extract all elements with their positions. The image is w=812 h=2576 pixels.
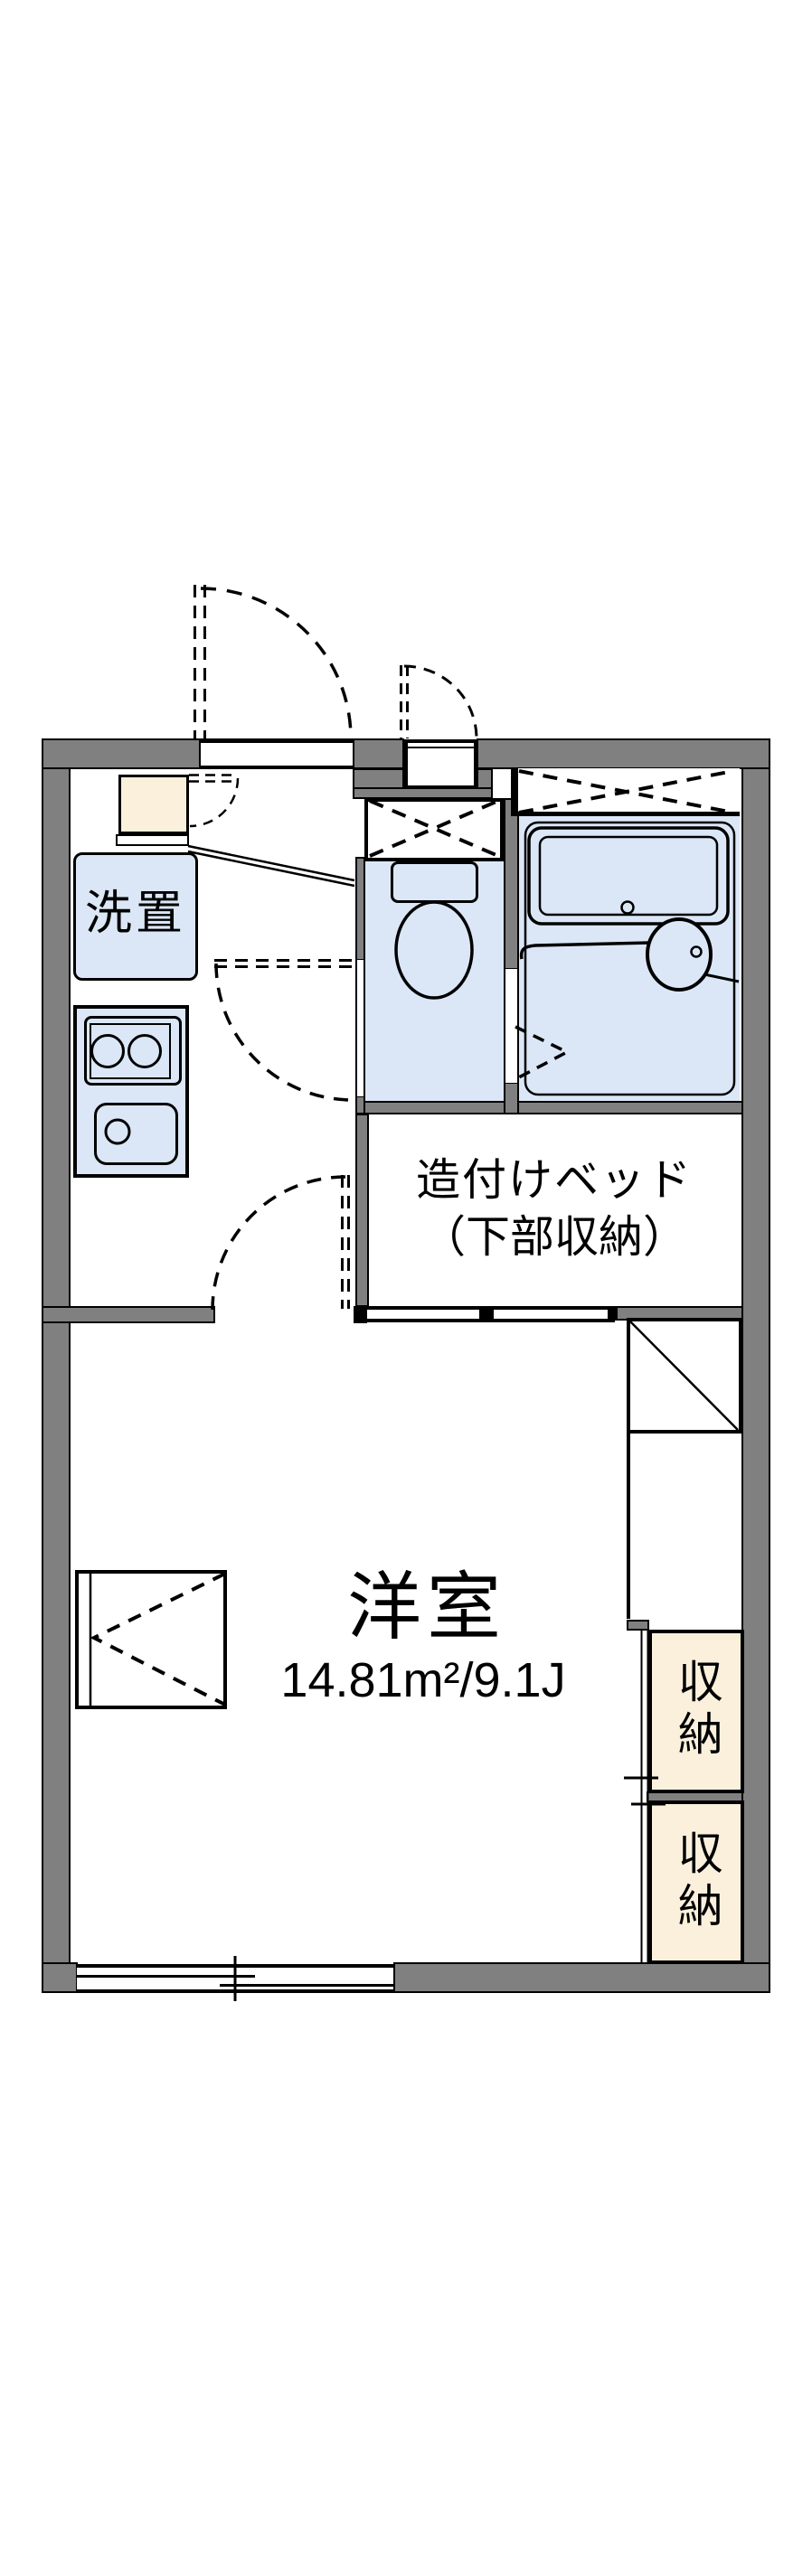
wall-nub-1 [354,1306,367,1323]
room-door-swing [212,1175,349,1310]
storage-top-stub [627,1620,649,1631]
meter-box-door-swing [401,665,477,747]
folding-table [75,1570,227,1709]
pipe-space-box [364,798,504,861]
window-opening [77,1964,393,1993]
bath-upper-shelf [511,768,740,816]
bed-label-line1: 造付けベッド [416,1155,693,1206]
toilet-tank [391,861,478,903]
room-label: 洋室 [347,1565,506,1650]
wall-top-left [42,738,201,769]
wall-bottom-left [42,1962,78,1993]
meter-box [404,739,477,789]
room-area-label: 14.81m²/9.1J [280,1652,565,1708]
wall-toilet-bath-stub [504,1082,519,1114]
wall-hall-toilet [355,857,365,961]
entrance-step-diagonal [188,846,354,886]
bath-doorway [504,969,519,1083]
bathroom-floor [518,816,740,1101]
wall-wet-bottom [362,1101,743,1114]
storage-upper-label: 収納 [670,1658,722,1763]
kitchen-sink [94,1103,178,1165]
shoe-cabinet-door-swing [189,776,238,827]
bed-label-line2: （下部収納） [421,1212,687,1263]
wall-nub-3 [608,1306,618,1321]
wall-top-mid [353,738,404,769]
wall-toilet-bath [504,798,519,970]
meter-box-jamb-right [477,768,493,789]
entrance-step-edge [116,834,189,846]
wall-top-right [477,738,770,769]
wall-hall-bed [355,1114,369,1307]
wall-nub-2 [479,1307,494,1322]
closet [627,1318,742,1434]
entrance-step [118,775,189,834]
storage-lower-label: 収納 [670,1829,722,1934]
linework-overlay [0,0,812,2576]
laundry-label: 洗置 [85,888,186,942]
meter-box-jamb-left [353,768,404,789]
stove-inner [90,1023,171,1079]
floor-plan: 洗置 造付けベッド （下部収納） 洋室 14.81m²/9.1J 収納 収納 [0,0,812,2576]
entrance-door-swing [195,585,352,738]
entrance-opening [201,738,353,769]
wall-bottom-right [393,1962,770,1993]
wall-hall-toilet-stub [355,1095,365,1114]
wall-right [741,738,770,1993]
toilet-doorway [355,960,365,1096]
wall-left [42,738,71,1993]
wall-room-top-left [42,1306,215,1323]
toilet-door-swing [214,961,354,1101]
